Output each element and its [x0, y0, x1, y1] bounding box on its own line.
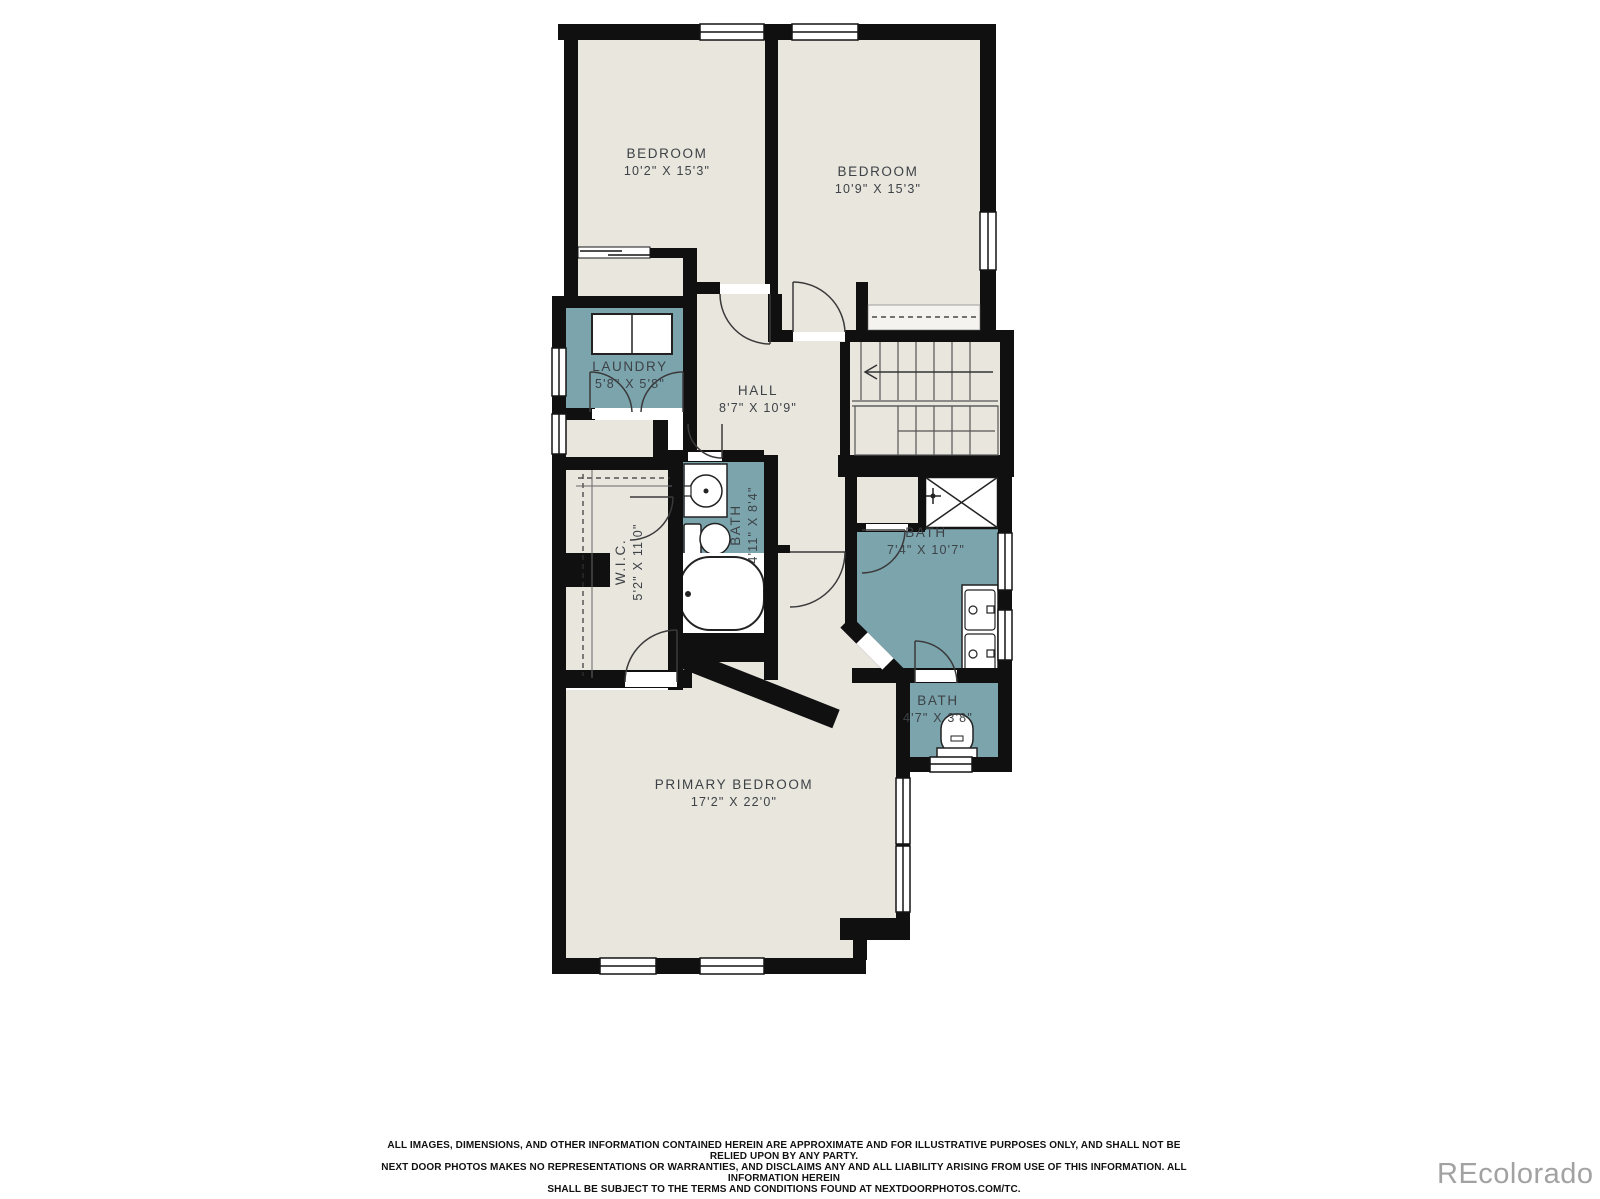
- room-name: BEDROOM: [624, 146, 710, 161]
- disclaimer-text: ALL IMAGES, DIMENSIONS, AND OTHER INFORM…: [374, 1140, 1194, 1195]
- disclaimer-line-3: SHALL BE SUBJECT TO THE TERMS AND CONDIT…: [374, 1184, 1194, 1195]
- room-label-bath-3: BATH 4'7" X 3'8": [903, 693, 973, 725]
- sink-icon: [684, 464, 727, 517]
- disclaimer-line-1: ALL IMAGES, DIMENSIONS, AND OTHER INFORM…: [374, 1140, 1194, 1162]
- room-name: BATH: [728, 486, 743, 563]
- floor-plan-page: BEDROOM 10'2" X 15'3" BEDROOM 10'9" X 15…: [0, 0, 1600, 1199]
- room-dimensions: 5'2" X 11'0": [631, 523, 645, 600]
- room-name: PRIMARY BEDROOM: [655, 777, 814, 792]
- room-floor-linen-nook: [857, 477, 920, 523]
- room-name: W.I.C.: [613, 523, 628, 600]
- room-name: BATH: [903, 693, 973, 708]
- room-label-primary-bedroom: PRIMARY BEDROOM 17'2" X 22'0": [655, 777, 814, 809]
- room-dimensions: 4'7" X 3'8": [903, 711, 973, 725]
- toilet-icon: [684, 524, 730, 556]
- sliding-door-icon: [578, 247, 650, 258]
- window: [600, 958, 656, 974]
- window: [998, 610, 1012, 660]
- window: [930, 757, 972, 772]
- shower-icon: [925, 477, 998, 528]
- washer-dryer-icon: [592, 314, 672, 354]
- room-dimensions: 10'2" X 15'3": [624, 164, 710, 178]
- room-name: LAUNDRY: [592, 359, 667, 374]
- window: [700, 24, 764, 40]
- room-dimensions: 17'2" X 22'0": [655, 795, 814, 809]
- room-label-wic: W.I.C. 5'2" X 11'0": [613, 523, 645, 600]
- room-dimensions: 8'7" X 10'9": [719, 401, 797, 415]
- room-name: BEDROOM: [835, 164, 921, 179]
- room-floor-stairs: [850, 342, 1000, 455]
- room-floor-nook: [566, 420, 653, 457]
- room-dimensions: 5'8" X 5'8": [592, 377, 667, 391]
- room-dimensions: 7'4" X 10'7": [887, 543, 965, 557]
- vanity-sinks-icon: [962, 585, 998, 678]
- room-label-bath-1: BATH 4'11" X 8'4": [728, 486, 760, 563]
- window: [700, 958, 764, 974]
- disclaimer-line-2: NEXT DOOR PHOTOS MAKES NO REPRESENTATION…: [374, 1162, 1194, 1184]
- room-label-hall: HALL 8'7" X 10'9": [719, 383, 797, 415]
- room-label-bedroom-1: BEDROOM 10'2" X 15'3": [624, 146, 710, 178]
- room-label-bath-2: BATH 7'4" X 10'7": [887, 525, 965, 557]
- room-dimensions: 4'11" X 8'4": [746, 486, 760, 563]
- window: [896, 778, 910, 844]
- window: [792, 24, 858, 40]
- room-label-bedroom-2: BEDROOM 10'9" X 15'3": [835, 164, 921, 196]
- window: [980, 212, 996, 270]
- floor-plan-drawing: [0, 0, 1600, 1199]
- window: [998, 533, 1012, 590]
- bathtub-icon: [676, 553, 768, 633]
- room-dimensions: 10'9" X 15'3": [835, 182, 921, 196]
- window: [552, 348, 566, 396]
- recolorado-watermark: REcolorado: [1437, 1158, 1594, 1191]
- room-name: BATH: [887, 525, 965, 540]
- window: [552, 414, 566, 454]
- room-label-laundry: LAUNDRY 5'8" X 5'8": [592, 359, 667, 391]
- room-name: HALL: [719, 383, 797, 398]
- window: [896, 846, 910, 912]
